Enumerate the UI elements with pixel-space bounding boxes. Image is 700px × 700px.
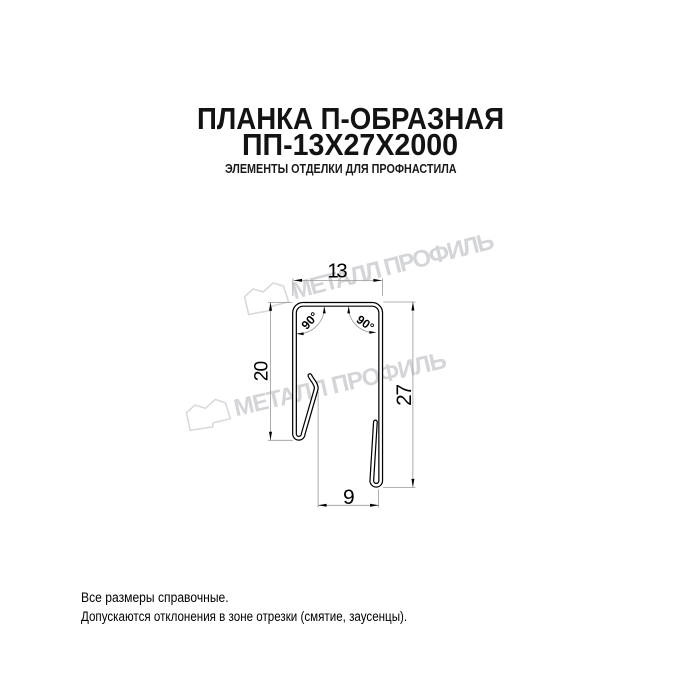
svg-text:20: 20 bbox=[251, 362, 272, 382]
svg-text:МЕТАЛЛ ПРОФИЛЬ: МЕТАЛЛ ПРОФИЛЬ bbox=[289, 228, 497, 305]
svg-text:27: 27 bbox=[393, 385, 416, 406]
svg-text:90°: 90° bbox=[299, 309, 322, 332]
svg-text:13: 13 bbox=[327, 260, 347, 283]
svg-text:90°: 90° bbox=[354, 312, 377, 334]
svg-text:9: 9 bbox=[343, 486, 355, 509]
svg-text:МЕТАЛЛ ПРОФИЛЬ: МЕТАЛЛ ПРОФИЛЬ bbox=[231, 347, 449, 422]
